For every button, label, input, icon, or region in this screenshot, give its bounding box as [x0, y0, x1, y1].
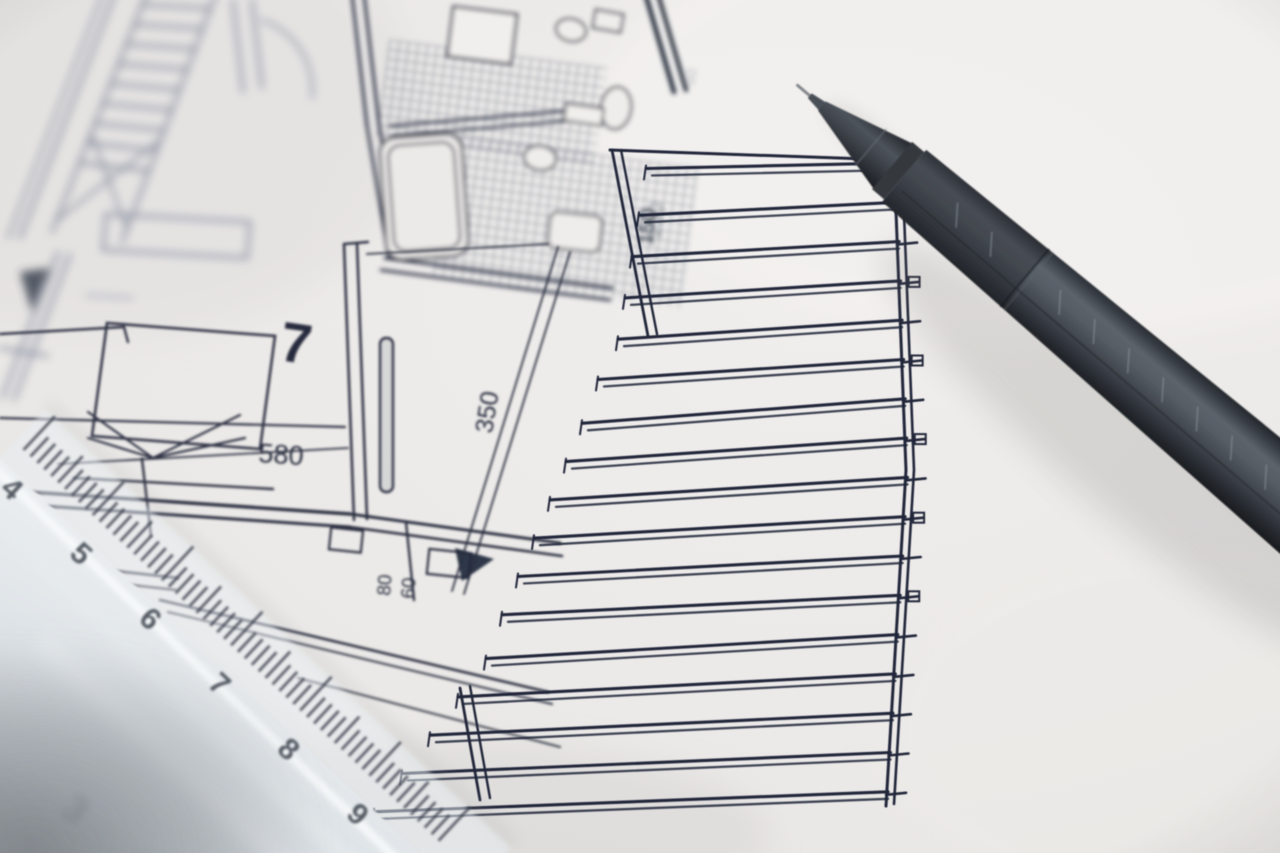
- vignette: [0, 0, 1280, 853]
- photo-canvas: 7 580 350 80 60 150 15: [0, 0, 1280, 853]
- photo-floorplan-pen-ruler: 7 580 350 80 60 150 15: [0, 0, 1280, 853]
